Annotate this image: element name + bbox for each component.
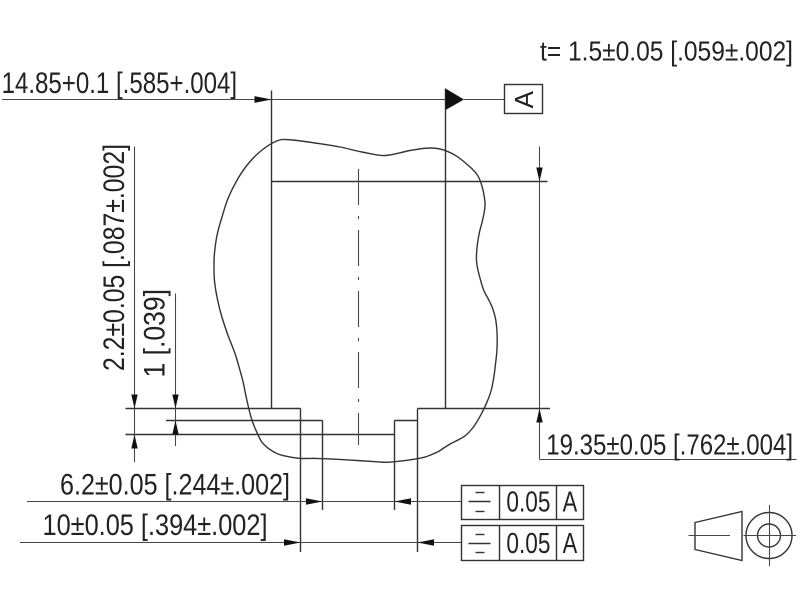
svg-text:14.85+0.1 [.585+.004]: 14.85+0.1 [.585+.004] [2, 67, 238, 100]
svg-text:6.2±0.05 [.244±.002]: 6.2±0.05 [.244±.002] [60, 469, 290, 502]
svg-text:10±0.05 [.394±.002]: 10±0.05 [.394±.002] [43, 509, 268, 542]
svg-text:A: A [563, 487, 578, 519]
svg-text:A: A [509, 90, 539, 108]
svg-text:0.05: 0.05 [506, 487, 550, 519]
svg-text:19.35±0.05 [.762±.004]: 19.35±0.05 [.762±.004] [546, 429, 793, 461]
svg-text:A: A [563, 528, 578, 560]
svg-text:2.2±0.05 [.087±.002]: 2.2±0.05 [.087±.002] [98, 144, 131, 371]
svg-text:t= 1.5±0.05 [.059±.002]: t= 1.5±0.05 [.059±.002] [540, 35, 793, 66]
svg-text:1 [.039]: 1 [.039] [139, 289, 172, 378]
svg-text:0.05: 0.05 [506, 528, 550, 560]
